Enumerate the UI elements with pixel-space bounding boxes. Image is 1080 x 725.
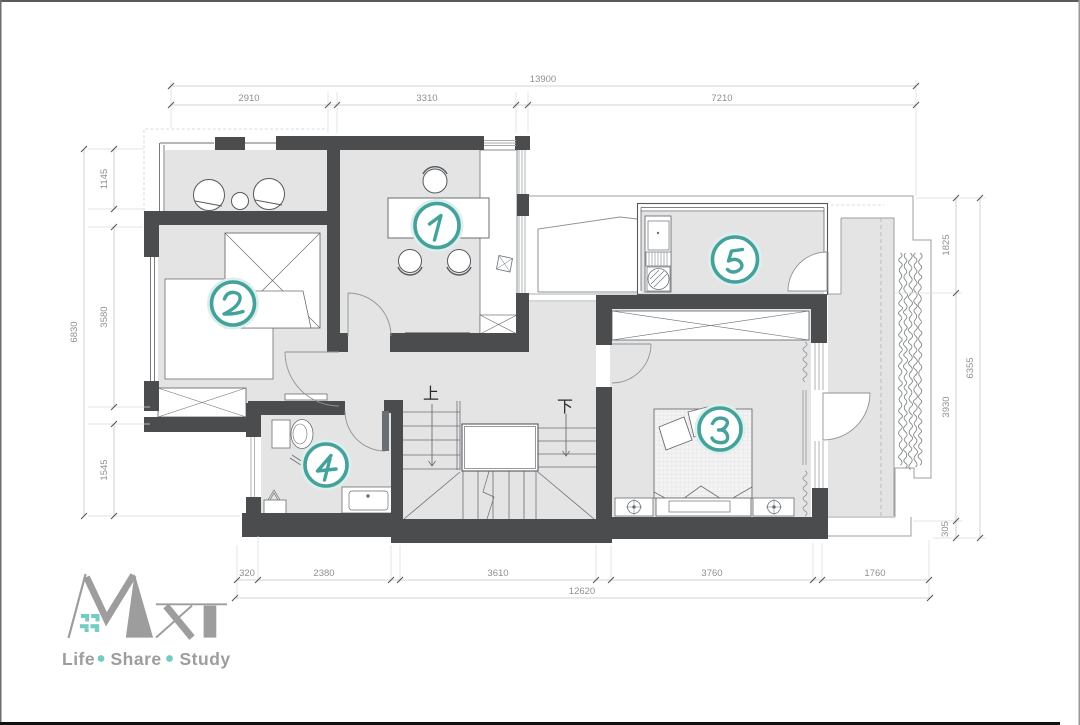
svg-text:305: 305 [940, 521, 951, 537]
svg-text:Study: Study [180, 649, 231, 669]
svg-text:1825: 1825 [941, 234, 952, 255]
svg-text:2910: 2910 [238, 93, 259, 104]
svg-text:上: 上 [423, 385, 439, 403]
svg-text:1545: 1545 [99, 459, 110, 480]
svg-text:3310: 3310 [416, 93, 437, 104]
svg-text:13900: 13900 [530, 74, 556, 85]
svg-text:6355: 6355 [965, 357, 976, 378]
svg-text:3930: 3930 [941, 396, 952, 417]
svg-text:Life: Life [62, 649, 95, 669]
svg-text:320: 320 [239, 568, 255, 579]
svg-text:3760: 3760 [701, 568, 722, 579]
svg-text:1760: 1760 [864, 568, 885, 579]
svg-text:7210: 7210 [711, 93, 732, 104]
svg-text:3580: 3580 [99, 306, 110, 327]
svg-text:2380: 2380 [313, 568, 334, 579]
svg-text:1145: 1145 [99, 169, 110, 189]
svg-text:3610: 3610 [487, 568, 508, 579]
svg-text:12620: 12620 [569, 586, 595, 597]
svg-text:下: 下 [557, 399, 573, 416]
svg-text:6830: 6830 [69, 321, 80, 342]
svg-text:Share: Share [111, 649, 162, 669]
